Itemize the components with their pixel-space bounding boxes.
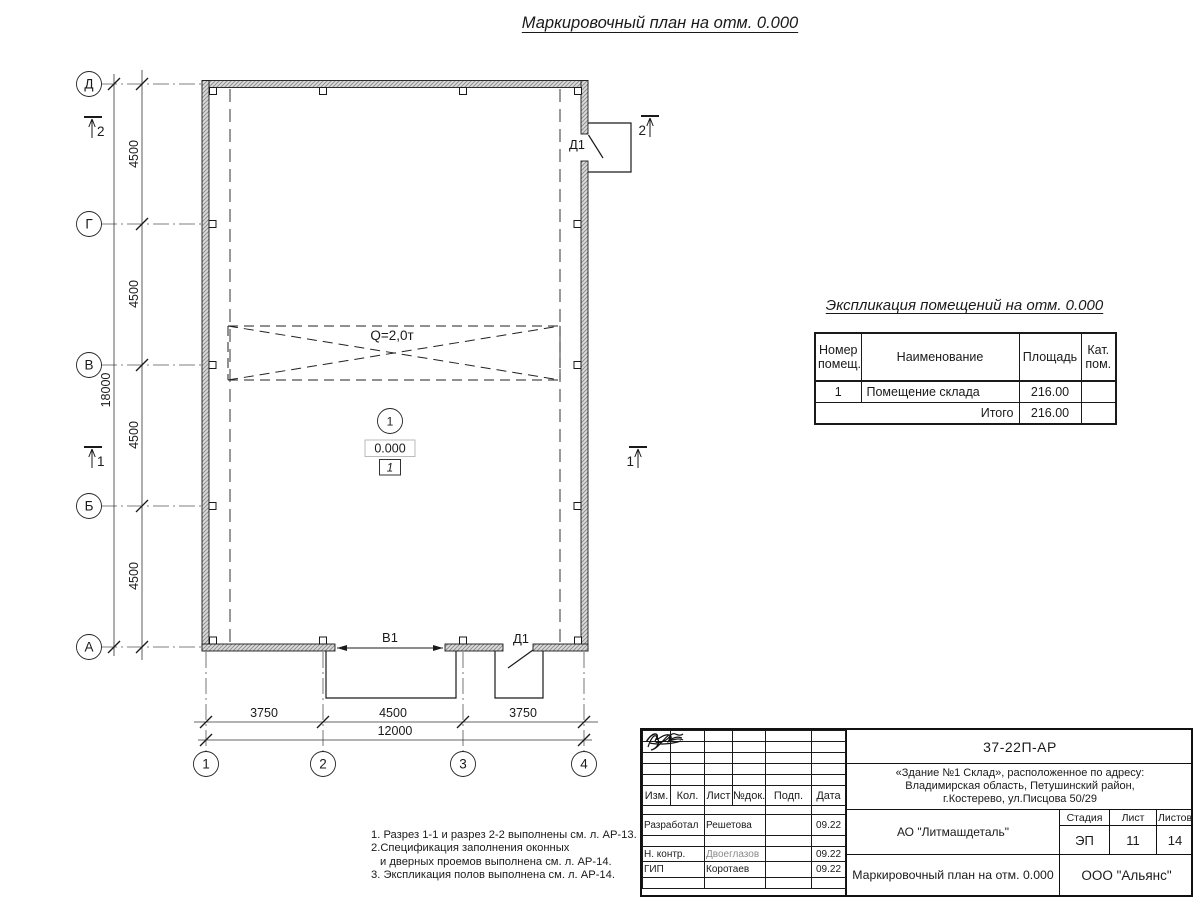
note-line: 3. Экспликация полов выполнена см. л. АР… xyxy=(371,869,651,882)
room-name-cell: Помещение склада xyxy=(861,381,1019,403)
company-name: ООО "Альянс" xyxy=(1060,855,1193,895)
drawing-sheet: Q=2,0т xyxy=(0,0,1200,900)
stage-grid: Стадия Лист Листов ЭП 11 14 xyxy=(1060,810,1193,854)
col-header-area: Площадь xyxy=(1019,333,1081,381)
object-description: «Здание №1 Склад», расположенное по адре… xyxy=(847,764,1193,810)
rev-header-doc: №док. xyxy=(733,786,766,806)
svg-text:2: 2 xyxy=(638,123,646,138)
object-line: «Здание №1 Склад», расположенное по адре… xyxy=(896,767,1145,780)
svg-text:4500: 4500 xyxy=(127,562,141,590)
opening-labels: Д1 В1 Д1 xyxy=(382,137,585,646)
explication-title: Экспликация помещений на отм. 0.000 xyxy=(814,297,1115,314)
title-block: Изм. Кол. Лист №док. Подп. Дата Разработ… xyxy=(640,728,1193,897)
page-title: Маркировочный план на отм. 0.000 xyxy=(410,14,910,33)
building-walls xyxy=(202,81,588,652)
sheets-total: 14 xyxy=(1157,826,1193,854)
rev-header-podp: Подп. xyxy=(766,786,812,806)
revision-table: Изм. Кол. Лист №док. Подп. Дата Разработ… xyxy=(642,730,847,895)
room-number-cell: 1 xyxy=(815,381,861,403)
room-category-cell xyxy=(1081,381,1116,403)
svg-text:Д: Д xyxy=(84,77,93,92)
note-line: 2.Спецификация заполнения оконных xyxy=(371,842,651,855)
signature xyxy=(766,815,812,836)
sign-row: Н. контр. Двоеглазов 09.22 xyxy=(643,847,846,862)
crane-runway-lines xyxy=(230,89,560,643)
sign-row: ГИП Коротаев 09.22 xyxy=(643,862,846,878)
top-door-leaf xyxy=(589,135,604,158)
section-marks xyxy=(84,116,659,468)
col-header-name: Наименование xyxy=(861,333,1019,381)
column-marks xyxy=(209,88,582,645)
sign-name: Коротаев xyxy=(705,862,766,878)
col-header-category: Кат. пом. xyxy=(1081,333,1116,381)
room-elevation: 0.000 xyxy=(374,442,405,456)
empty-cell xyxy=(1081,403,1116,425)
rev-header-list: Лист xyxy=(705,786,733,806)
floor-type-mark: 1 xyxy=(387,463,393,475)
sheet-label: Лист xyxy=(1110,810,1157,825)
object-line: г.Костерево, ул.Писцова 50/29 xyxy=(943,793,1097,806)
bottom-door-leaf xyxy=(508,650,533,668)
svg-text:4500: 4500 xyxy=(127,140,141,168)
sign-row: Разработал Решетова 09.22 xyxy=(643,815,846,836)
svg-text:12000: 12000 xyxy=(378,724,413,738)
drawing-title: Маркировочный план на отм. 0.000 xyxy=(847,855,1060,895)
explication-table: Номер помещ. Наименование Площадь Кат. п… xyxy=(814,332,1117,425)
axis-lines xyxy=(101,84,584,752)
sign-role: ГИП xyxy=(643,862,705,878)
svg-text:А: А xyxy=(84,640,93,655)
note-line: 1. Разрез 1-1 и разрез 2-2 выполнены см.… xyxy=(371,829,651,842)
svg-text:4: 4 xyxy=(580,757,588,772)
col-header-room-number: Номер помещ. xyxy=(815,333,861,381)
svg-text:4500: 4500 xyxy=(127,280,141,308)
svg-text:4500: 4500 xyxy=(379,706,407,720)
sign-date: 09.22 xyxy=(812,862,846,878)
svg-text:В: В xyxy=(84,358,93,373)
plan-notes: 1. Разрез 1-1 и разрез 2-2 выполнены см.… xyxy=(371,829,651,883)
svg-text:1: 1 xyxy=(202,757,210,772)
top-door-label: Д1 xyxy=(569,137,585,152)
top-door-porch xyxy=(588,123,631,172)
crane-capacity-label: Q=2,0т xyxy=(370,328,413,343)
sign-date: 09.22 xyxy=(812,847,846,862)
svg-text:1: 1 xyxy=(626,454,634,469)
title-block-right: 37-22П-АР «Здание №1 Склад», расположенн… xyxy=(847,730,1193,895)
bottom-door-label: Д1 xyxy=(513,631,529,646)
total-area-cell: 216.00 xyxy=(1019,403,1081,425)
svg-text:3: 3 xyxy=(459,757,467,772)
rev-header-kol: Кол. xyxy=(671,786,705,806)
document-number: 37-22П-АР xyxy=(847,730,1193,764)
room-area-cell: 216.00 xyxy=(1019,381,1081,403)
sheets-label: Листов xyxy=(1157,810,1193,825)
section-mark-labels: 2 1 1 2 xyxy=(97,123,646,469)
svg-text:4500: 4500 xyxy=(127,421,141,449)
room-number: 1 xyxy=(387,415,394,429)
bottom-door-porch xyxy=(495,651,543,698)
object-line: Владимирская область, Петушинский район, xyxy=(905,780,1134,793)
svg-text:3750: 3750 xyxy=(250,706,278,720)
signature xyxy=(766,862,812,878)
gate-ramp xyxy=(326,651,456,698)
sign-role: Н. контр. xyxy=(643,847,705,862)
sheet-number: 11 xyxy=(1110,826,1157,854)
note-line: и дверных проемов выполнена см. л. АР-14… xyxy=(371,856,651,869)
svg-text:Г: Г xyxy=(85,217,93,232)
sign-name: Решетова xyxy=(705,815,766,836)
svg-text:2: 2 xyxy=(319,757,327,772)
sign-name: Двоеглазов xyxy=(705,847,766,862)
rev-header-izm: Изм. xyxy=(643,786,671,806)
sign-date: 09.22 xyxy=(812,815,846,836)
signature xyxy=(766,847,812,862)
stage-value: ЭП xyxy=(1060,826,1110,854)
gate-label: В1 xyxy=(382,630,398,645)
axis-labels: Д Г В Б А 1 2 3 4 xyxy=(84,77,588,772)
sign-role: Разработал xyxy=(643,815,705,836)
total-row: Итого 216.00 xyxy=(815,403,1116,425)
svg-text:18000: 18000 xyxy=(99,373,113,408)
room-marks: 1 0.000 1 xyxy=(365,409,415,476)
client-name: АО "Литмашдеталь" xyxy=(847,810,1060,854)
total-label-cell: Итого xyxy=(815,403,1019,425)
table-row: 1 Помещение склада 216.00 xyxy=(815,381,1116,403)
svg-text:2: 2 xyxy=(97,124,105,139)
svg-text:Б: Б xyxy=(85,499,94,514)
svg-text:3750: 3750 xyxy=(509,706,537,720)
axis-circles xyxy=(77,72,597,777)
svg-text:1: 1 xyxy=(97,454,105,469)
rev-header-data: Дата xyxy=(812,786,846,806)
stage-label: Стадия xyxy=(1060,810,1110,825)
